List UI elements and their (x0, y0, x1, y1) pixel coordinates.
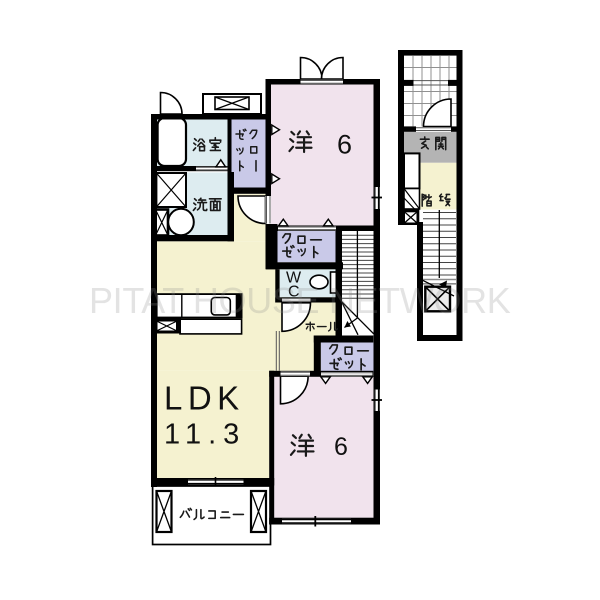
svg-text:6: 6 (334, 433, 348, 461)
svg-text:LDK: LDK (164, 379, 245, 416)
svg-text:11.3: 11.3 (164, 418, 246, 450)
svg-text:PITAT HOUSE NETWORK: PITAT HOUSE NETWORK (89, 280, 511, 321)
svg-text:6: 6 (337, 130, 352, 160)
